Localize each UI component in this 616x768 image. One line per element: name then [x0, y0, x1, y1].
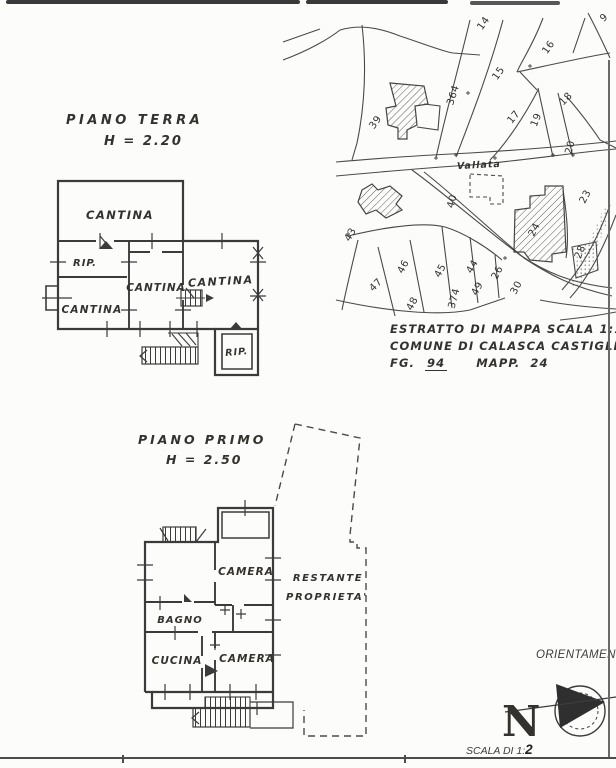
parcel-number: 19 — [529, 112, 544, 129]
first-floor-plan: CAMERA BAGNO CUCINA CAMERA RESTANTE PROP… — [130, 415, 380, 745]
parcel-number: 374 — [447, 287, 463, 310]
parcel-number: 43 — [343, 226, 359, 243]
room-label-cantina-right: CANTINA — [188, 273, 254, 289]
border-tick-1 — [122, 755, 124, 763]
mapp-label: MAPP. — [476, 356, 520, 370]
fg-label: FG. — [390, 356, 415, 370]
ground-floor-plan: CANTINA RIP. CANTINA CANTINA CANTINA RIP… — [40, 172, 300, 388]
parcel-number: 30 — [509, 279, 525, 296]
fg-value: 94 — [425, 356, 447, 371]
map-caption-line3: FG.94 MAPP.24 — [390, 355, 616, 372]
map-building-dashed — [470, 174, 503, 204]
compass-needle — [556, 684, 605, 728]
drawing-scale-note: SCALA DI 1:2 — [466, 742, 616, 757]
parcel-number: 15 — [491, 65, 508, 83]
parcel-number: 44 — [465, 258, 481, 275]
scale-label: SCALA DI 1: — [466, 745, 525, 757]
ground-floor-stairs — [140, 290, 205, 364]
first-floor-room-labels: CAMERA BAGNO CUCINA CAMERA RESTANTE PROP… — [152, 566, 368, 667]
ground-floor-room-labels: CANTINA RIP. CANTINA CANTINA CANTINA RIP… — [61, 208, 253, 359]
parcel-number: 48 — [405, 295, 421, 312]
map-building-hatched-24 — [514, 186, 566, 262]
parcel-number: 18 — [557, 90, 574, 107]
room-label-bagno: BAGNO — [157, 615, 202, 626]
scanned-floorplan-page: PIANO TERRA H = 2.20 PIANO PRIMO H = 2.5… — [0, 0, 616, 768]
map-caption-line2: COMUNE DI CALASCA CASTIGLIO — [390, 338, 616, 355]
parcel-number: 40 — [445, 193, 459, 209]
room-label-camera-bottom: CAMERA — [219, 653, 275, 665]
room-label-cantina-left: CANTINA — [61, 304, 122, 316]
north-letter: N — [502, 697, 540, 746]
room-label-cucina: CUCINA — [152, 655, 203, 667]
map-parcel-lines — [283, 13, 616, 320]
map-caption-line1: ESTRATTO DI MAPPA SCALA 1:10 — [390, 321, 616, 338]
ground-floor-height-note: H = 2.20 — [104, 134, 183, 149]
room-label-rip-bottom: RIP. — [225, 346, 249, 359]
map-buildings — [358, 83, 612, 292]
map-building-hatched-2 — [358, 184, 402, 218]
scan-artifact-top-1 — [6, 0, 300, 4]
scale-value: 2 — [525, 742, 533, 757]
parcel-number: 17 — [505, 109, 522, 127]
room-label-rip-left: RIP. — [73, 258, 97, 269]
remaining-property-label-2: PROPRIETA' — [286, 592, 368, 603]
parcel-number: 23 — [578, 188, 594, 205]
mapp-value: 24 — [530, 356, 548, 370]
map-building-hatched-1 — [386, 83, 428, 139]
room-label-camera-top: CAMERA — [218, 566, 274, 578]
page-border-bottom — [0, 757, 616, 759]
parcel-number: 26 — [490, 264, 506, 281]
parcel-number: 46 — [396, 258, 412, 275]
parcel-number: 39 — [368, 114, 385, 132]
cadastral-map: 14 15 16 9 364 39 17 19 18 20 40 23 24 2… — [280, 0, 616, 322]
parcel-number: 364 — [445, 84, 462, 107]
room-label-cantina-mid: CANTINA — [126, 282, 186, 294]
room-label-cantina-top: CANTINA — [86, 208, 154, 222]
map-caption: ESTRATTO DI MAPPA SCALA 1:10 COMUNE DI C… — [390, 321, 616, 372]
remaining-property-label-1: RESTANTE — [293, 573, 363, 584]
parcel-number: 49 — [470, 280, 486, 297]
parcel-number: 14 — [476, 15, 493, 33]
parcel-number: 16 — [541, 39, 558, 57]
parcel-number: 9 — [598, 12, 610, 25]
parcel-number: 47 — [367, 276, 384, 293]
map-road-label: Vallata — [457, 159, 501, 172]
page-border-vertical — [608, 60, 610, 758]
border-tick-2 — [404, 755, 406, 763]
north-compass-icon: N — [490, 670, 616, 750]
orientation-title: ORIENTAMENT — [536, 649, 616, 661]
ground-floor-title: PIANO TERRA — [66, 113, 203, 128]
